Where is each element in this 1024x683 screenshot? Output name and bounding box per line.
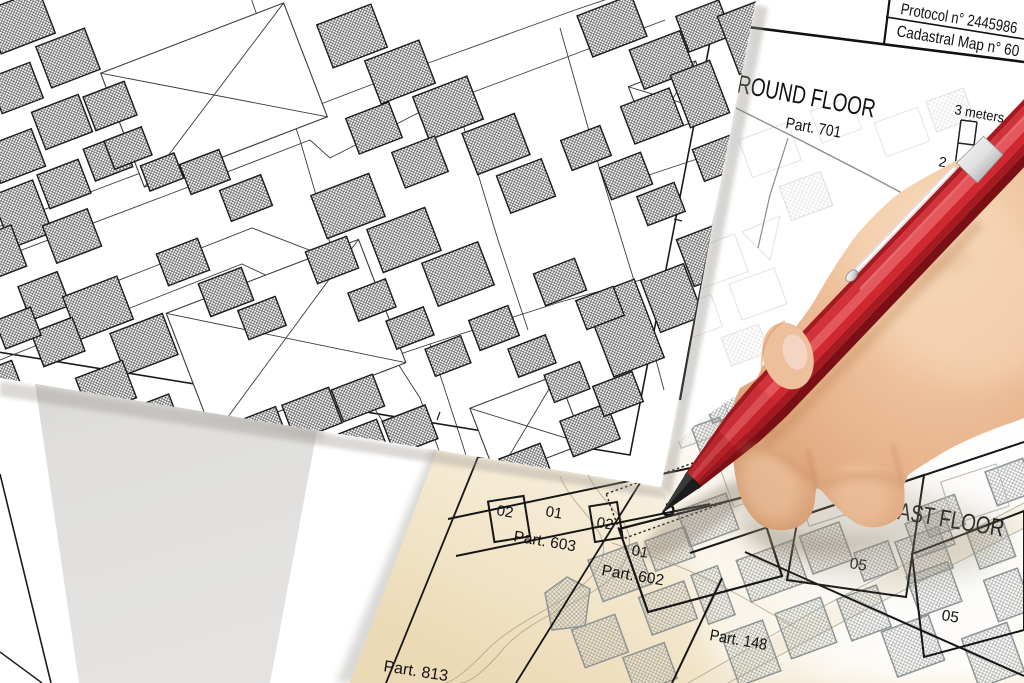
svg-text:02: 02: [595, 514, 614, 534]
svg-text:01: 01: [544, 503, 563, 523]
svg-text:05: 05: [940, 607, 960, 627]
svg-text:02: 02: [495, 502, 514, 522]
